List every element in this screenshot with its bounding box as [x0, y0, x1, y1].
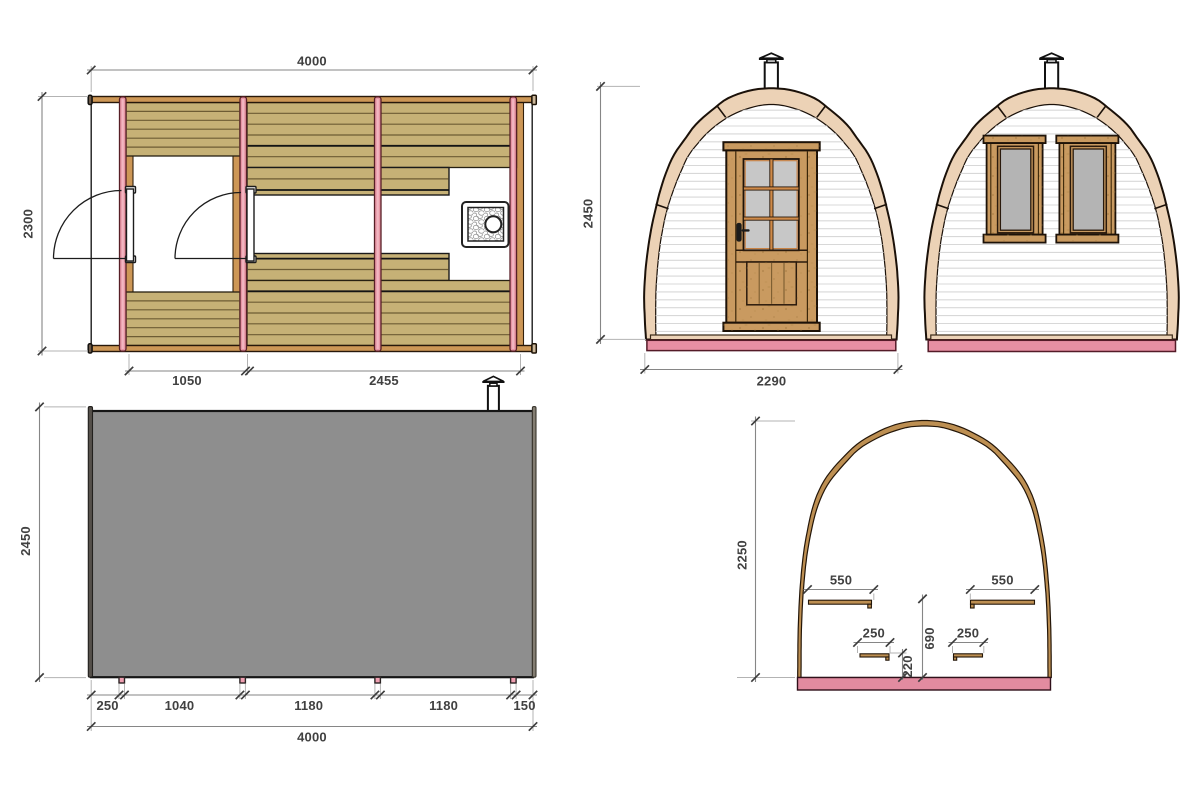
svg-text:550: 550	[991, 573, 1013, 588]
svg-text:1180: 1180	[429, 698, 458, 713]
svg-text:2450: 2450	[580, 199, 595, 229]
svg-text:550: 550	[830, 573, 852, 588]
svg-text:250: 250	[957, 626, 979, 641]
svg-text:1050: 1050	[172, 373, 202, 388]
svg-text:2450: 2450	[18, 526, 33, 556]
svg-text:250: 250	[96, 698, 118, 713]
svg-text:2250: 2250	[734, 540, 749, 570]
svg-text:4000: 4000	[297, 730, 327, 745]
svg-text:150: 150	[513, 698, 535, 713]
svg-text:1040: 1040	[165, 698, 195, 713]
svg-text:2290: 2290	[757, 374, 787, 389]
svg-text:250: 250	[863, 626, 885, 641]
svg-text:1180: 1180	[294, 698, 323, 713]
svg-text:4000: 4000	[297, 54, 327, 69]
svg-text:690: 690	[922, 627, 937, 649]
svg-text:2300: 2300	[21, 209, 36, 239]
svg-text:220: 220	[900, 655, 915, 677]
svg-text:2455: 2455	[369, 373, 399, 388]
